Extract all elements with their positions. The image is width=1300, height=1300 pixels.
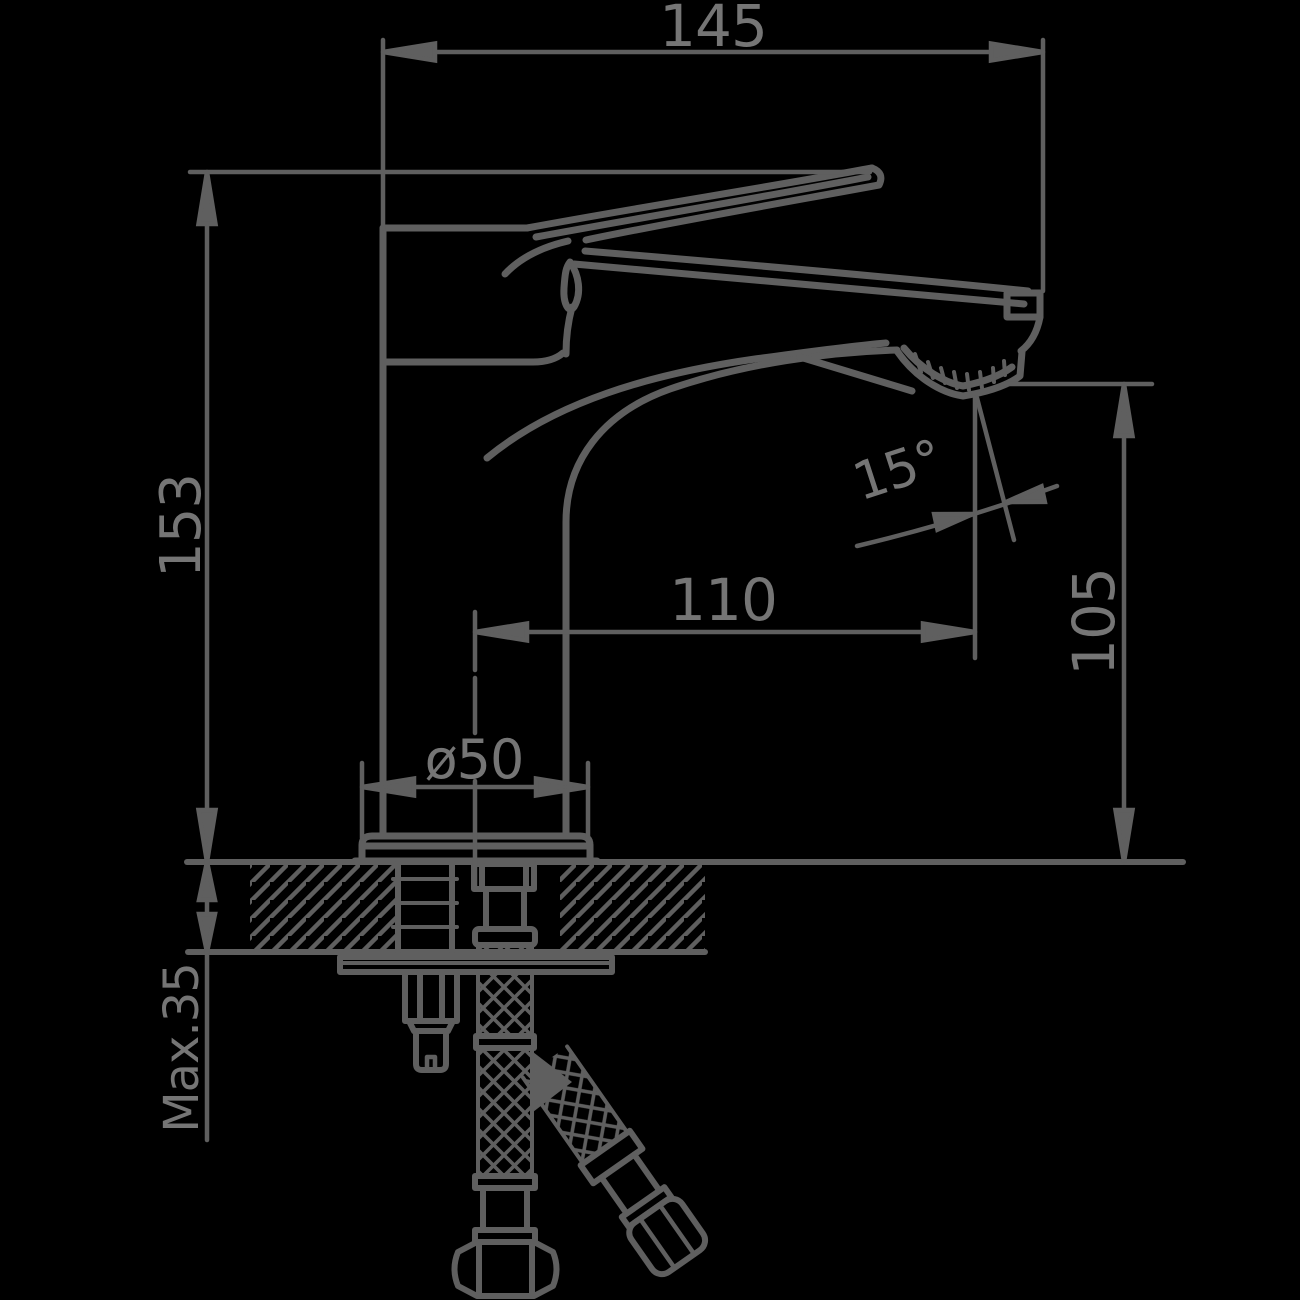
hatch-right	[560, 865, 705, 950]
drawing-canvas: 145 153 Max.35 110 105 ø50 15°	[0, 0, 1300, 1300]
label-spout-reach: 110	[669, 566, 777, 634]
label-overall-height: 153	[149, 474, 214, 578]
hatch-left	[250, 865, 397, 950]
label-deck-thickness: Max.35	[154, 963, 210, 1133]
label-overall-width: 145	[659, 0, 767, 60]
faucet-technical-drawing: 145 153 Max.35 110 105 ø50 15°	[0, 0, 1300, 1300]
washer-plate	[340, 957, 612, 972]
label-outlet-height: 105	[1060, 568, 1128, 676]
label-base-diameter: ø50	[425, 728, 524, 791]
